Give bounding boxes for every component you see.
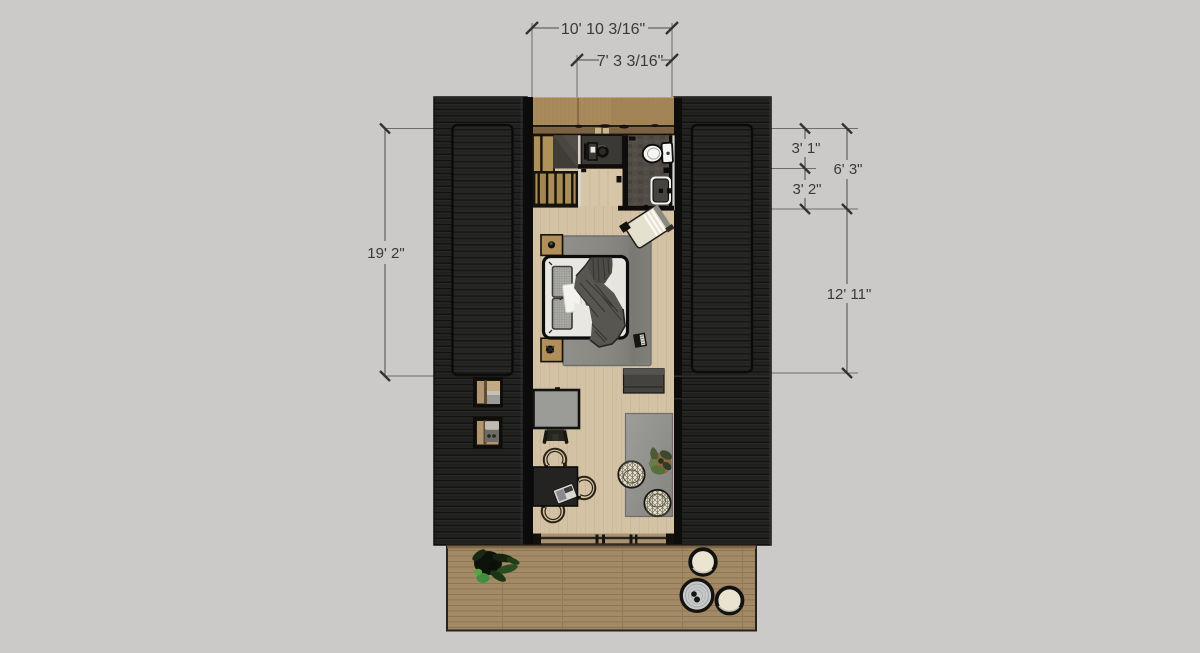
svg-text:19' 2": 19' 2" (367, 245, 404, 262)
svg-text:3' 2": 3' 2" (792, 181, 821, 198)
svg-text:12' 11": 12' 11" (827, 286, 872, 303)
svg-text:10' 10 3/16": 10' 10 3/16" (561, 21, 645, 38)
svg-text:3' 1": 3' 1" (791, 140, 820, 157)
svg-text:6' 3": 6' 3" (833, 161, 862, 178)
svg-text:7' 3 3/16": 7' 3 3/16" (597, 53, 664, 70)
